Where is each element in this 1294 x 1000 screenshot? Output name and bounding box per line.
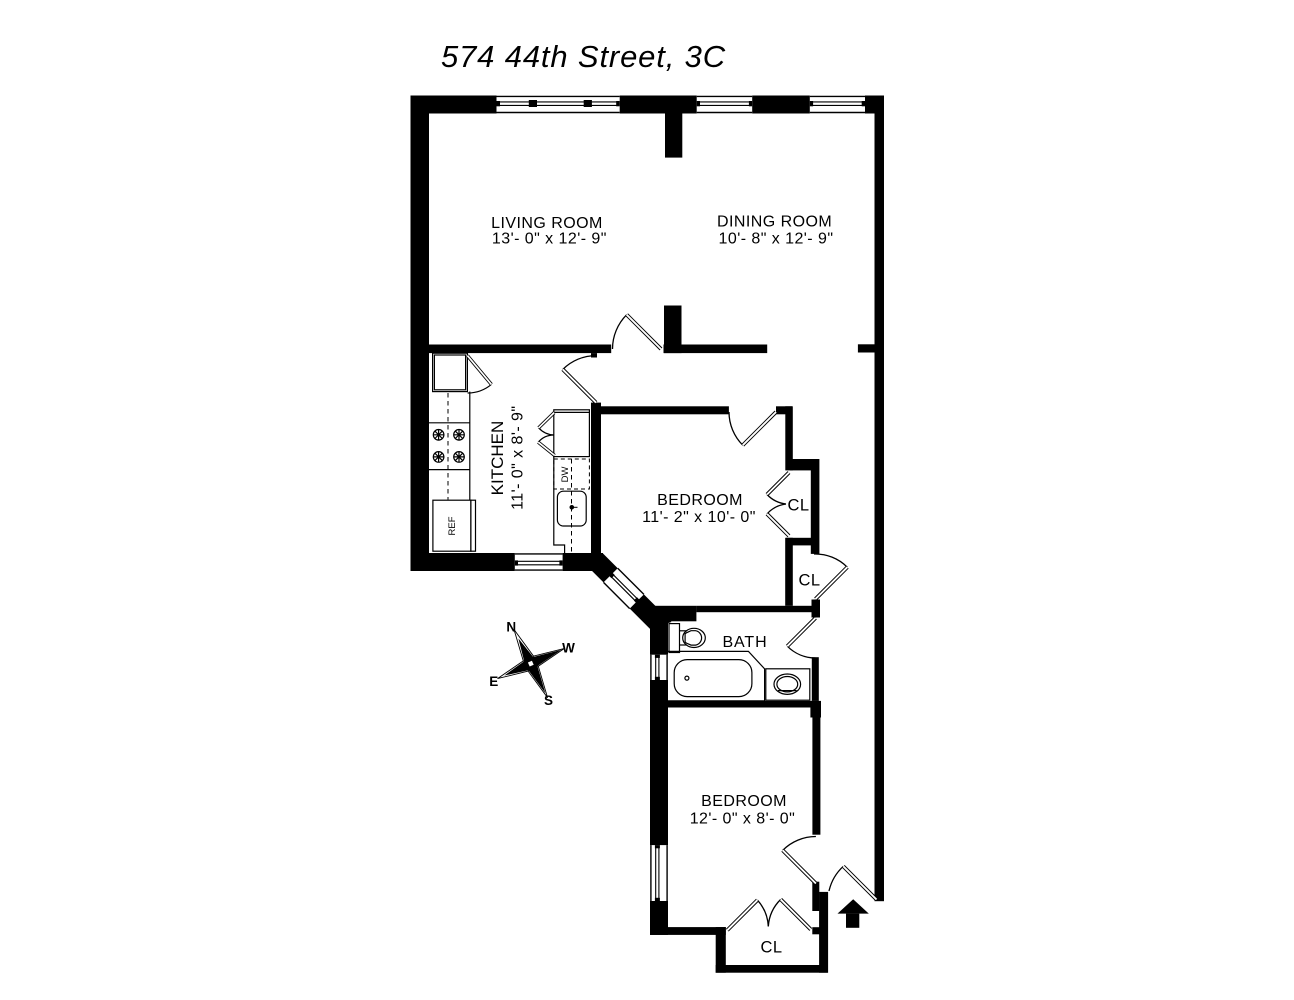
svg-text:CL: CL <box>788 496 810 514</box>
svg-text:KITCHEN: KITCHEN <box>488 421 507 496</box>
svg-text:13'- 0" x 12'- 9": 13'- 0" x 12'- 9" <box>492 231 607 248</box>
svg-text:10'- 8" x 12'- 9": 10'- 8" x 12'- 9" <box>719 231 834 248</box>
svg-text:CL: CL <box>799 572 821 590</box>
svg-text:BATH: BATH <box>722 634 767 651</box>
svg-text:DW: DW <box>560 467 571 483</box>
svg-text:BEDROOM: BEDROOM <box>657 492 743 509</box>
svg-text:W: W <box>562 640 575 655</box>
svg-text:12'- 0" x 8'- 0": 12'- 0" x 8'- 0" <box>690 810 796 827</box>
svg-text:574 44th Street, 3C: 574 44th Street, 3C <box>441 39 726 74</box>
svg-text:S: S <box>544 693 553 708</box>
svg-text:11'- 0" x 8'- 9": 11'- 0" x 8'- 9" <box>510 405 527 509</box>
svg-text:E: E <box>489 674 498 689</box>
svg-text:N: N <box>506 620 516 635</box>
svg-text:BEDROOM: BEDROOM <box>701 793 787 810</box>
svg-text:REF: REF <box>447 516 458 535</box>
svg-text:LIVING ROOM: LIVING ROOM <box>491 215 603 232</box>
svg-text:DINING ROOM: DINING ROOM <box>717 213 832 230</box>
svg-text:CL: CL <box>761 939 783 957</box>
svg-text:11'- 2" x 10'- 0": 11'- 2" x 10'- 0" <box>642 509 756 526</box>
